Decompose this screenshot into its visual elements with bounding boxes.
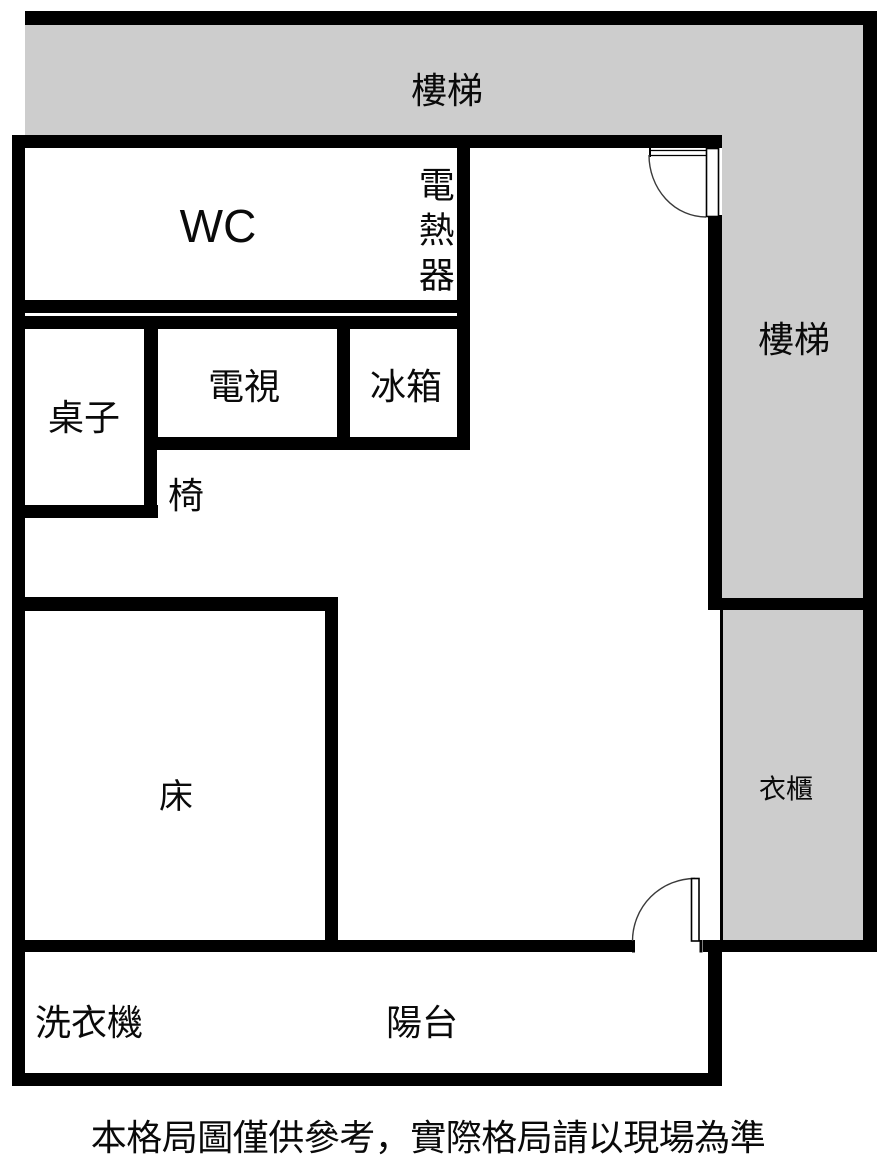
entry-door-top-sill bbox=[649, 151, 706, 156]
balcony-door bbox=[632, 879, 703, 953]
disclaimer-caption: 本格局圖僅供參考，實際格局請以現場為準 bbox=[91, 1120, 766, 1156]
fridge-label: 冰箱 bbox=[370, 369, 442, 405]
entry-door-top-leaf bbox=[707, 149, 719, 217]
wc-label: WC bbox=[180, 203, 257, 249]
balcony-door-jamb-left bbox=[632, 940, 635, 953]
table-label: 桌子 bbox=[48, 400, 120, 436]
balcony-door-arc bbox=[633, 879, 696, 942]
tv-label: 電視 bbox=[208, 369, 280, 405]
entry-door-top-arc bbox=[649, 155, 706, 217]
balcony-door-jamb-right bbox=[700, 940, 703, 953]
chair-label: 椅 bbox=[168, 478, 204, 514]
wardrobe-label: 衣櫃 bbox=[759, 777, 813, 804]
balcony-label: 陽台 bbox=[386, 1005, 458, 1041]
stairs-right-label: 樓梯 bbox=[758, 322, 830, 358]
balcony-door-leaf bbox=[692, 879, 700, 942]
bed-label: 床 bbox=[159, 780, 193, 814]
entry-door-top bbox=[649, 148, 719, 217]
stairs-top-label: 樓梯 bbox=[411, 73, 483, 109]
washing-machine-label: 洗衣機 bbox=[35, 1005, 143, 1041]
floorplan: 樓梯 WC 電熱器 桌子 電視 冰箱 椅 樓梯 床 衣櫃 洗衣機 陽台 本格局圖… bbox=[0, 0, 889, 1173]
water-heater-label: 電熱器 bbox=[414, 166, 454, 301]
